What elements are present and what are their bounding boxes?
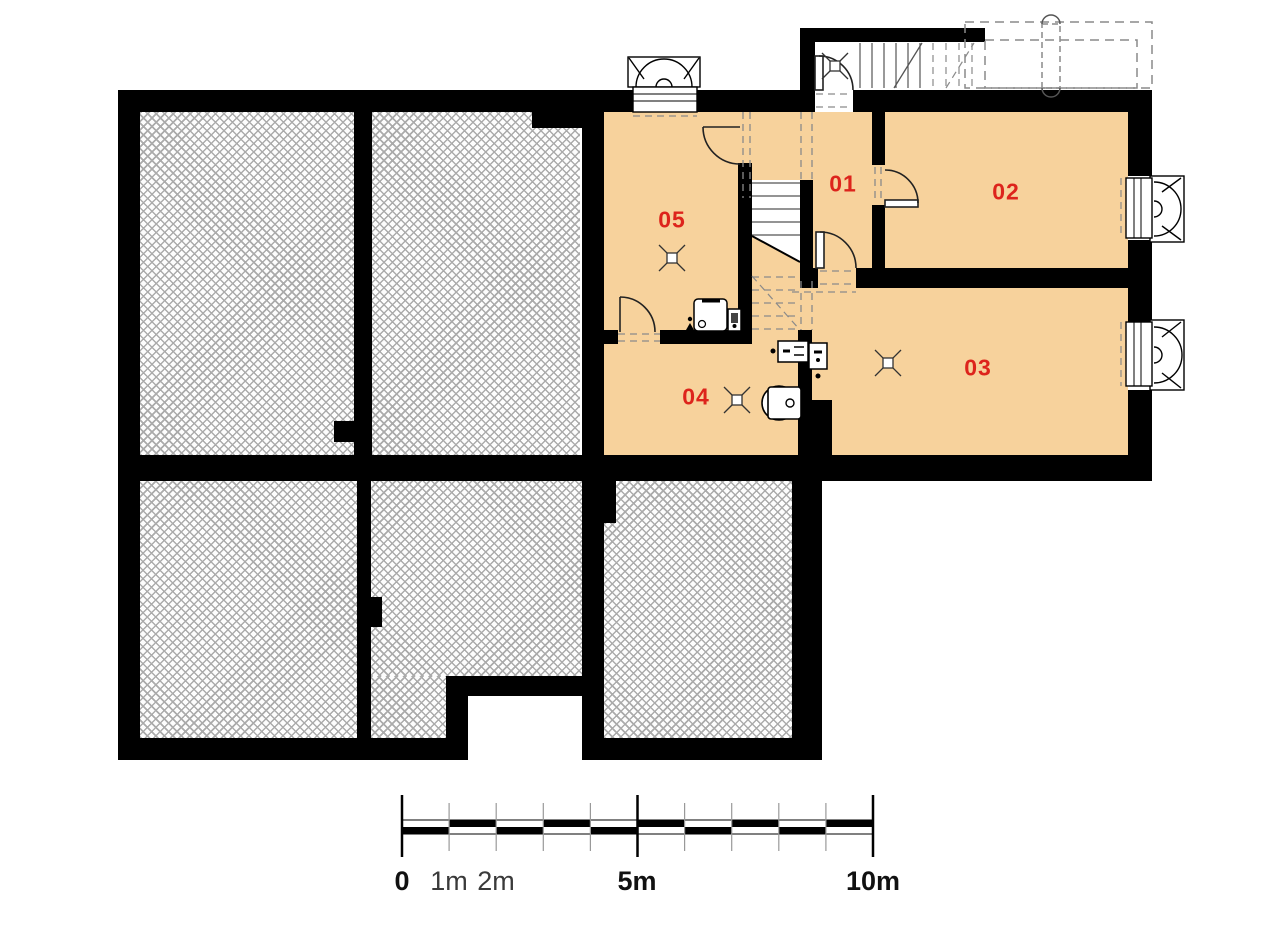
scale-bar xyxy=(402,795,873,857)
window-well-icon xyxy=(628,57,700,87)
water-treatment-unit-icon xyxy=(728,309,741,331)
boiler-icon xyxy=(762,386,801,420)
gas-meter-icon xyxy=(809,343,827,379)
column-icon xyxy=(1042,15,1060,97)
room-label-04: 04 xyxy=(682,384,710,411)
scale-label-2m: 2m xyxy=(477,866,515,897)
basement-window-icon xyxy=(633,87,697,116)
window-well-icon xyxy=(1150,176,1184,242)
electrical-meter-icon xyxy=(771,341,809,362)
washing-machine-icon xyxy=(694,299,727,331)
scale-label-0: 0 xyxy=(394,866,409,897)
floor-plan: 01 02 03 04 05 0 1m 2m 5m 10m xyxy=(0,0,1280,927)
window-well-icon xyxy=(1150,320,1184,390)
room-label-05: 05 xyxy=(658,207,686,234)
scale-label-1m: 1m xyxy=(430,866,468,897)
scale-label-10m: 10m xyxy=(846,866,900,897)
room-label-02: 02 xyxy=(992,179,1020,206)
exterior-stairs-icon xyxy=(860,43,974,88)
room-label-03: 03 xyxy=(964,355,992,382)
floor-drain-icon xyxy=(686,317,694,330)
terrace-dashed-outline-icon xyxy=(965,22,1152,88)
basement-window-icon xyxy=(1121,178,1152,238)
room-label-01: 01 xyxy=(829,171,857,198)
plan-linework xyxy=(0,0,1280,927)
basement-window-icon xyxy=(1121,322,1152,386)
scale-label-5m: 5m xyxy=(617,866,656,897)
interior-staircase-icon xyxy=(752,180,800,330)
